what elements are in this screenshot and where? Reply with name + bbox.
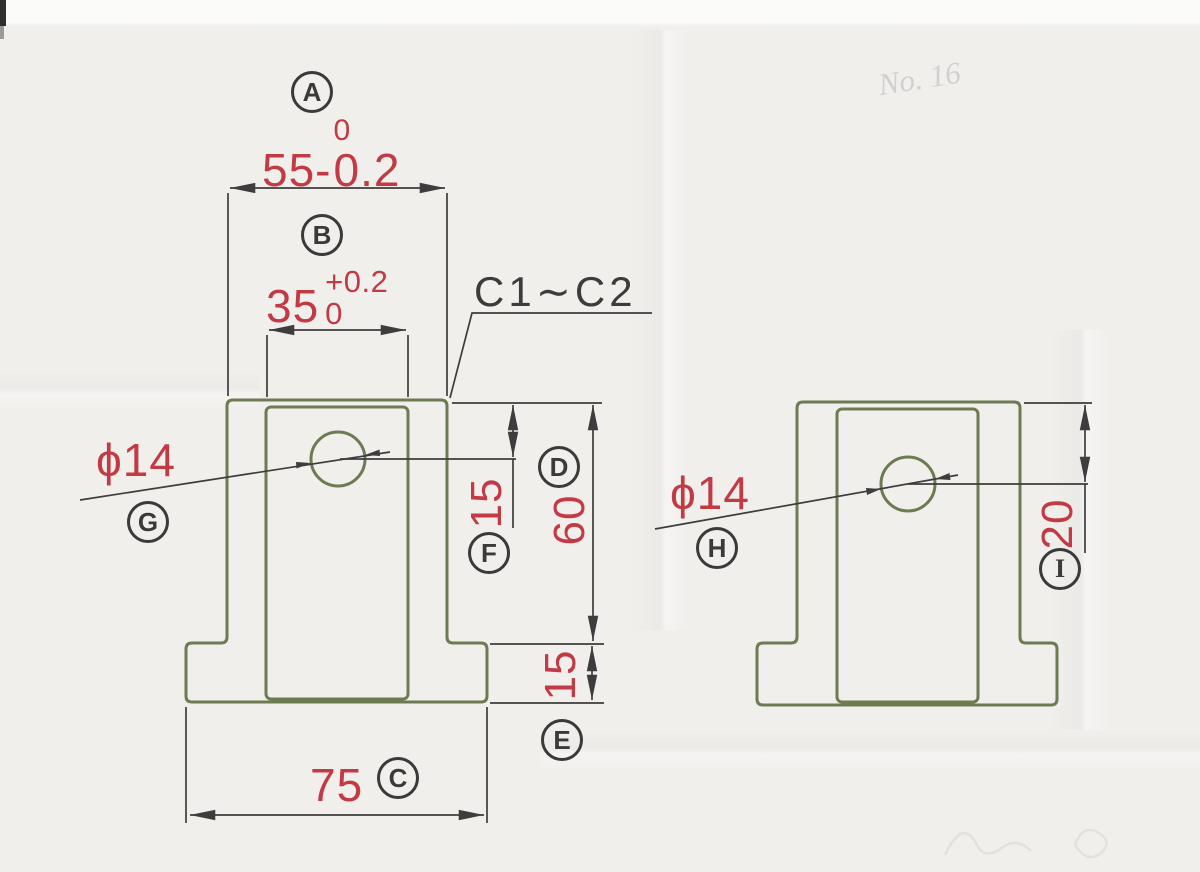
dim-55-tol-lower: 0.2 <box>333 147 400 193</box>
side-view-outline <box>757 402 1057 705</box>
faint-pencil-marks <box>945 830 1107 857</box>
dim-75-label: 75 <box>310 762 363 808</box>
balloon-e: E <box>541 719 583 761</box>
balloon-i: I <box>1039 548 1081 590</box>
drawing-linework <box>0 0 1200 872</box>
chamfer-note: C1∼C2 <box>474 271 637 313</box>
balloon-c: C <box>377 757 419 799</box>
balloon-h: H <box>696 527 738 569</box>
dim-35-base: 35 <box>266 283 319 329</box>
dim-15-lower-label: 15 <box>539 650 583 701</box>
balloon-f: F <box>468 532 510 574</box>
dim-35-tol-upper: +0.2 <box>325 266 388 298</box>
front-hole-dia-label: ϕ14 <box>96 437 176 483</box>
balloon-d: D <box>538 446 580 488</box>
dim-20-label: 20 <box>1036 499 1080 550</box>
scanned-drawing-page: 55- 0 0.2 35 +0.2 0 C1∼C2 ϕ14 ϕ14 15 60 … <box>0 0 1200 872</box>
balloon-b: B <box>301 214 343 256</box>
dim-15-upper-label: 15 <box>465 478 509 529</box>
balloon-g: G <box>127 501 169 543</box>
dim-60-label: 60 <box>548 495 592 546</box>
dim-55-base: 55- <box>262 147 331 193</box>
dim-35-tol-lower: 0 <box>325 298 343 330</box>
balloon-a: A <box>291 71 333 113</box>
dim-35-label: 35 +0.2 0 <box>266 266 388 329</box>
chamfer-leader <box>450 313 652 398</box>
side-hole-dia-label: ϕ14 <box>670 470 750 516</box>
dim-55-tol-upper: 0 <box>333 116 350 147</box>
dim-55-label: 55- 0 0.2 <box>262 116 400 193</box>
front-view-outline <box>186 400 487 702</box>
dim-35-lines <box>267 330 408 397</box>
